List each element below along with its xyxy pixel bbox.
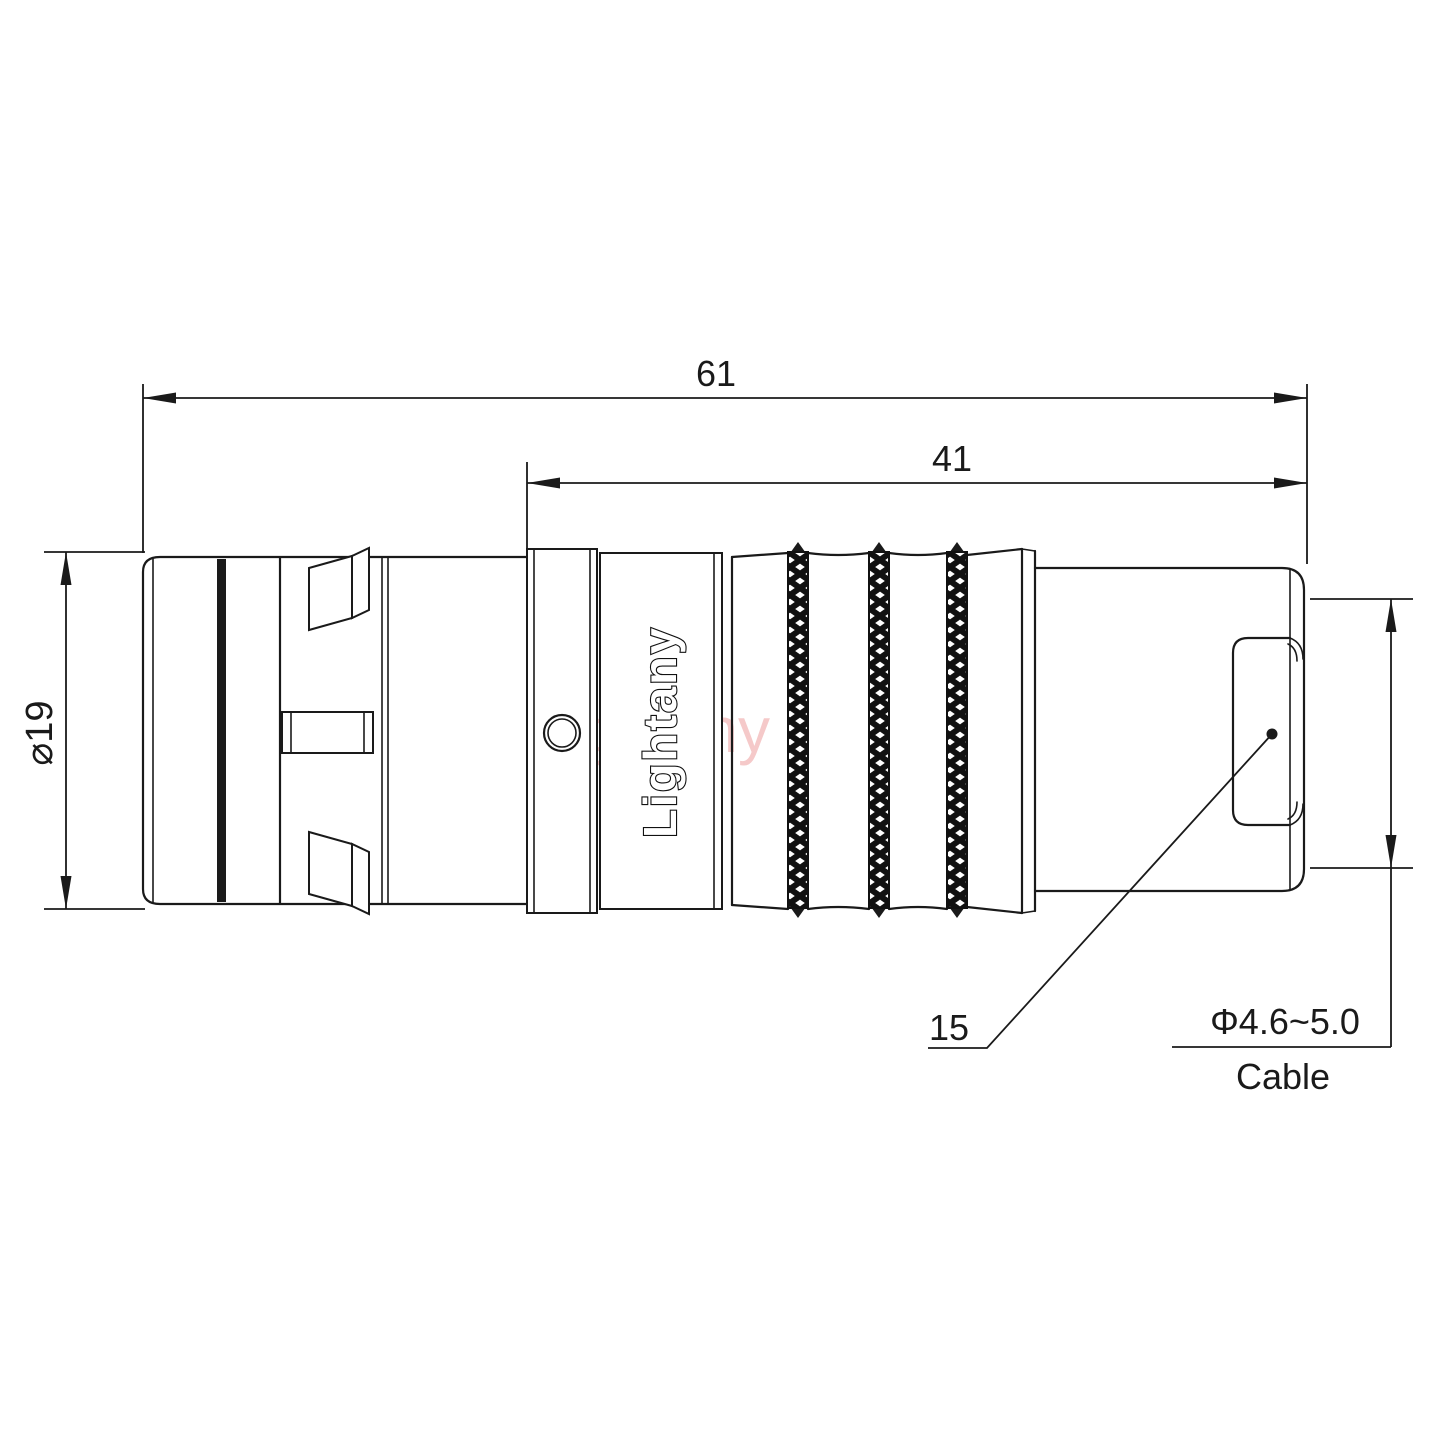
dimension-mid-length: 41 [527,438,1307,550]
dim-cable-diameter-value: Φ4.6~5.0 [1210,1001,1360,1042]
connector-collar [527,549,597,913]
vent-hole-outer [544,715,580,751]
guide-slot [282,712,373,753]
dim-rear-ref-value: 15 [929,1007,969,1048]
dim-diameter-value: ⌀19 [19,700,61,765]
knurl-band-1 [788,542,808,918]
connector-drawing-canvas: Lightany Lightany [0,0,1440,1440]
dim-overall-length-value: 61 [696,353,736,394]
knurl-band-2 [869,542,889,918]
dimension-overall-length: 61 [143,353,1307,564]
dim-mid-length-value: 41 [932,438,972,479]
knurl-band-3 [947,542,967,918]
cable-label: Cable [1236,1056,1330,1097]
logo-text: Lightany [634,626,686,838]
dimension-diameter: ⌀19 [19,552,145,909]
technical-drawing-page: Lightany Lightany [0,0,1440,1440]
seal-ring-band [217,559,226,902]
